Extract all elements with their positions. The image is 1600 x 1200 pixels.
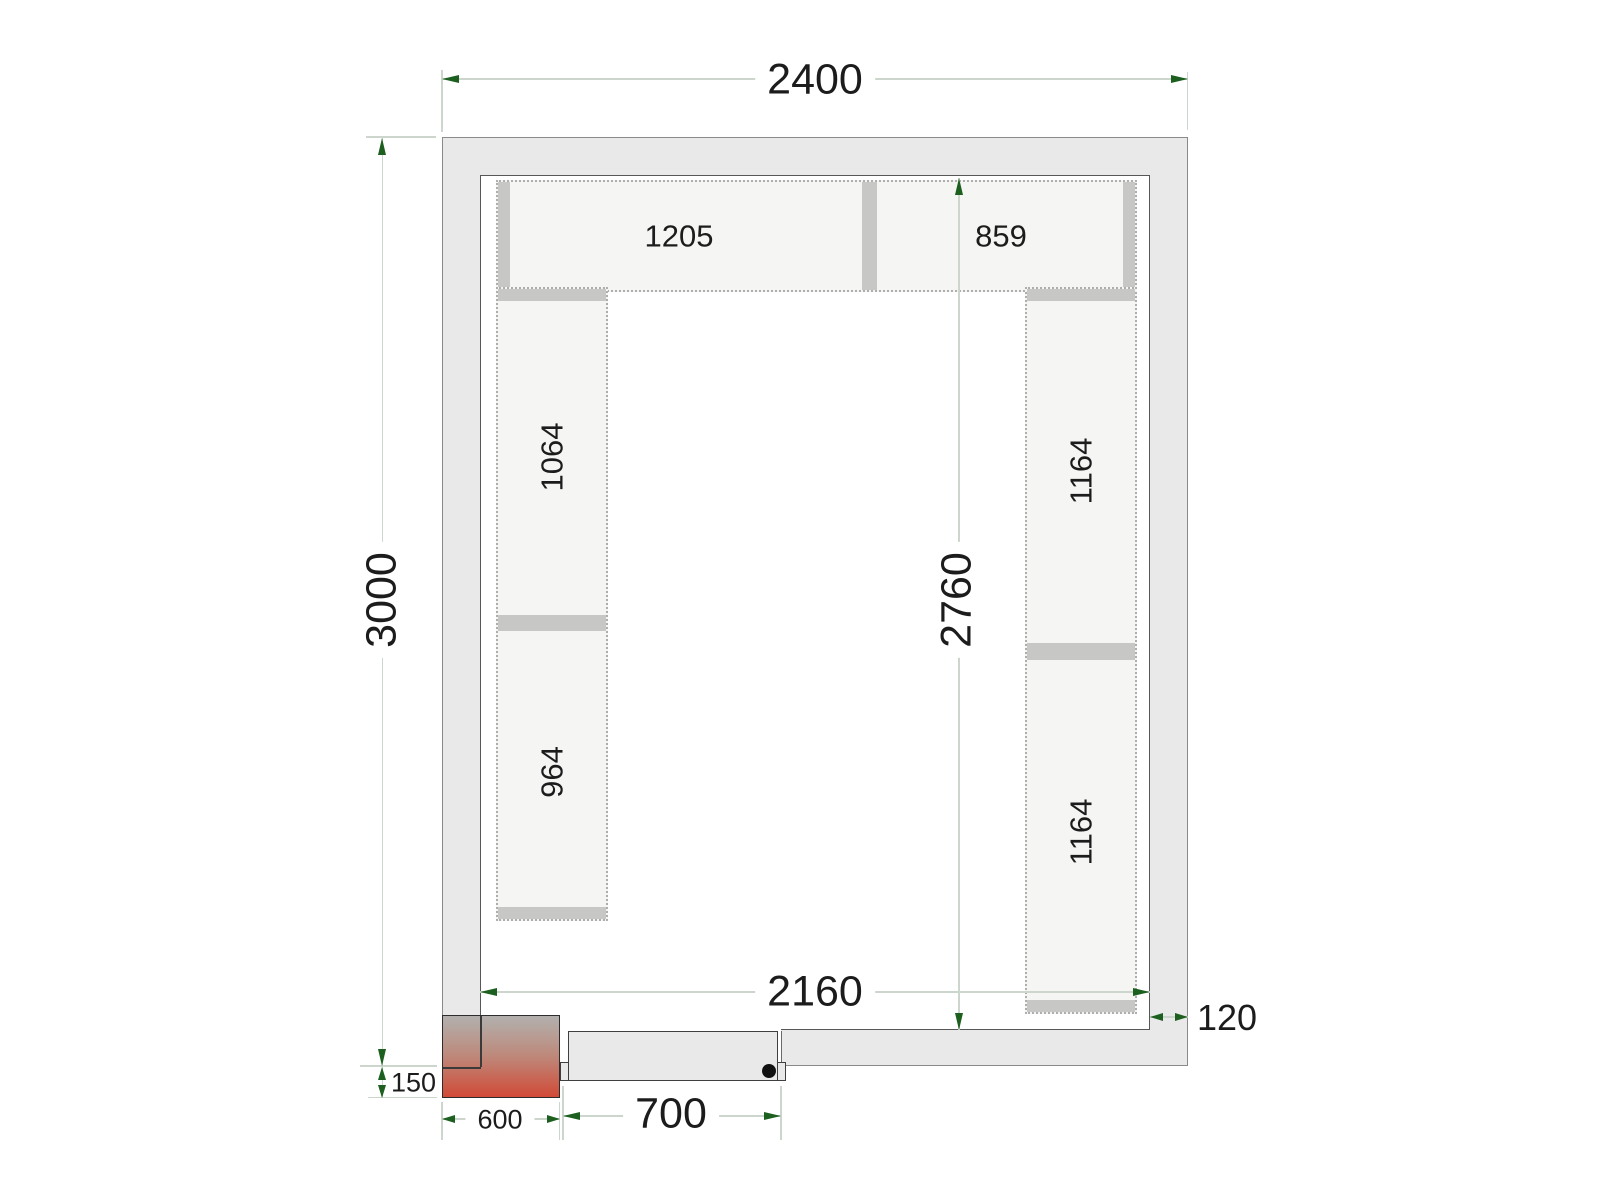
dim-arrow-right-icon	[764, 1112, 781, 1120]
dim-arrow-up-icon	[955, 178, 963, 195]
shelf-divider	[498, 615, 606, 631]
shelf-divider	[862, 182, 877, 290]
shelf-right-column	[1025, 287, 1137, 1014]
shelf-end-cap	[1123, 182, 1135, 290]
shelf-label-left-lower: 964	[537, 746, 568, 798]
cold-room-floor-plan: 1205 859 1064 964 1164 1164 2400 3000 21…	[0, 0, 1600, 1200]
dim-outer-height-label: 3000	[359, 542, 406, 658]
door-handle-dot	[762, 1064, 776, 1078]
dim-unit-width-label: 600	[465, 1105, 534, 1136]
shelf-end-cap	[498, 907, 606, 919]
shelf-end-cap	[1027, 1000, 1135, 1012]
dim-arrow-up-icon	[378, 1067, 386, 1080]
dim-arrow-down-icon	[378, 1085, 386, 1098]
dim-arrow-left-icon	[480, 988, 497, 996]
door-frame-step	[560, 1062, 569, 1081]
dim-inner-width-label: 2160	[755, 969, 875, 1016]
shelf-end-cap	[498, 182, 510, 290]
wall-corner-line	[480, 1016, 482, 1067]
shelf-label-left-upper: 1064	[537, 423, 568, 492]
shelf-top-band	[496, 180, 1137, 292]
shelf-end-cap	[1027, 289, 1135, 301]
door-frame-step	[777, 1062, 786, 1081]
door-leaf	[568, 1031, 778, 1081]
shelf-divider	[1027, 643, 1135, 660]
dim-arrow-up-icon	[378, 138, 386, 155]
shelf-end-cap	[498, 289, 606, 301]
dim-arrow-right-icon	[1171, 75, 1188, 83]
wall-corner-line	[443, 1067, 481, 1069]
shelf-label-top-right: 859	[975, 221, 1027, 252]
dim-inner-height-label: 2760	[934, 542, 981, 658]
shelf-label-right-lower: 1164	[1066, 799, 1097, 866]
dim-arrow-left-icon	[1150, 1013, 1163, 1021]
dim-arrow-right-icon	[1133, 988, 1150, 996]
door-jamb-line	[781, 1031, 783, 1066]
dim-arrow-down-icon	[378, 1049, 386, 1066]
dim-arrow-left-icon	[442, 75, 459, 83]
dim-unit-offset-label: 150	[391, 1070, 436, 1097]
dim-outer-width-label: 2400	[755, 57, 875, 104]
dim-arrow-left-icon	[563, 1112, 580, 1120]
dim-wall-thickness-label: 120	[1197, 1000, 1257, 1036]
dim-arrow-right-icon	[1175, 1013, 1188, 1021]
dim-door-width-label: 700	[623, 1091, 719, 1138]
dim-arrow-right-icon	[547, 1115, 560, 1123]
dim-arrow-down-icon	[955, 1013, 963, 1030]
shelf-label-top-left: 1205	[645, 221, 714, 252]
shelf-label-right-upper: 1164	[1066, 438, 1097, 505]
condensing-unit	[442, 1015, 560, 1098]
shelf-left-column	[496, 287, 608, 921]
dim-arrow-left-icon	[442, 1115, 455, 1123]
extension-line	[366, 136, 436, 138]
